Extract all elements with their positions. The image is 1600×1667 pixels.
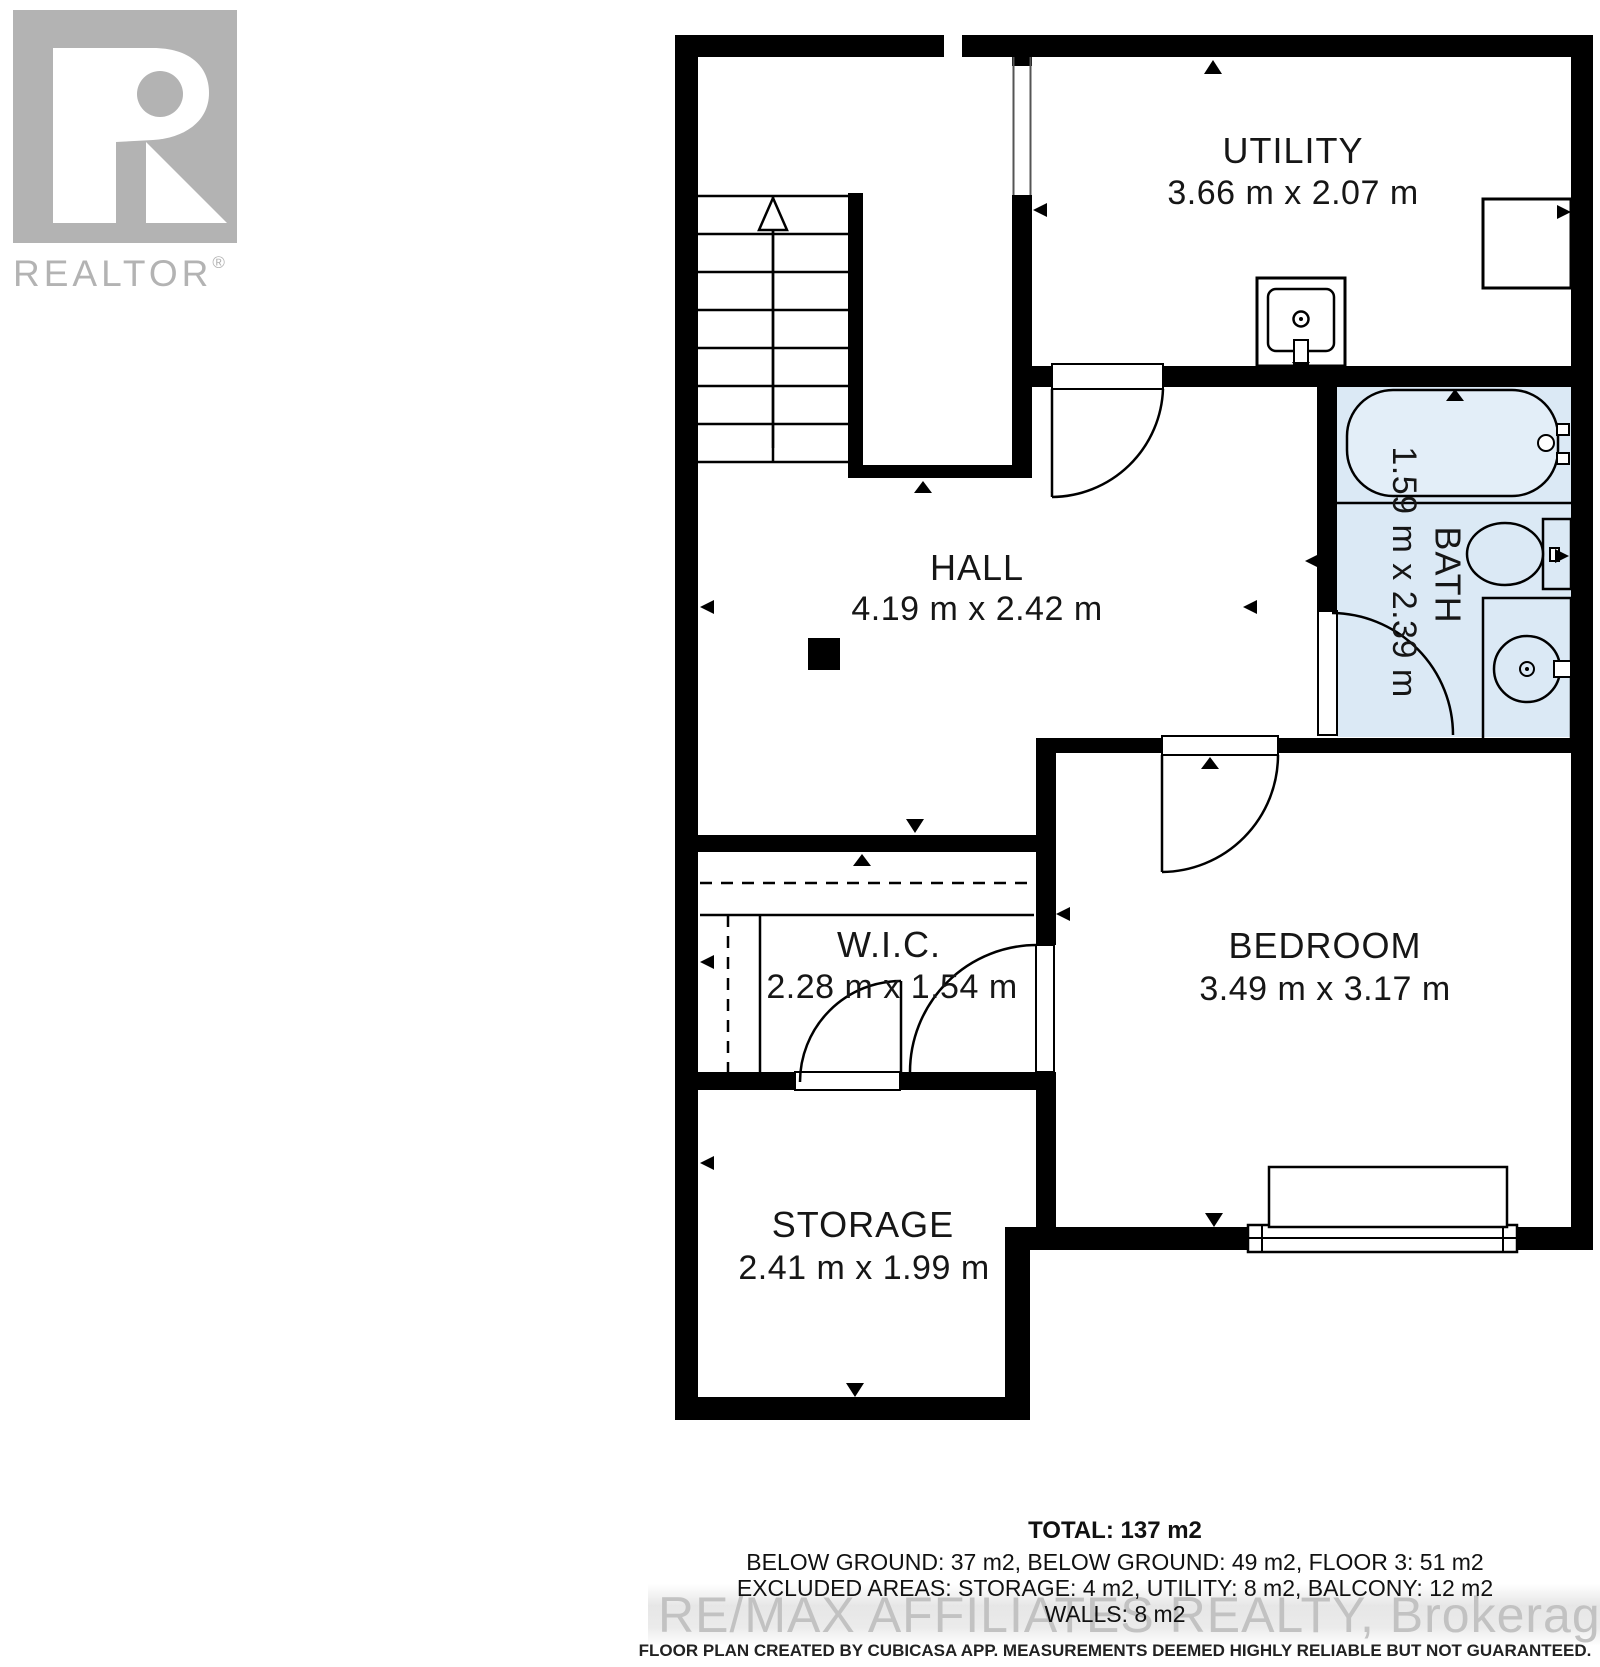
room-label-wic: W.I.C. <box>837 924 941 965</box>
wall-stairwell-stub <box>1012 57 1032 66</box>
summary-excluded: EXCLUDED AREAS: STORAGE: 4 m2, UTILITY: … <box>630 1575 1600 1601</box>
wall-stair-right <box>848 193 863 465</box>
wall-bedroom-bottom-left <box>1005 1227 1248 1250</box>
wall-storage-right <box>1005 1227 1030 1420</box>
floor-plan-svg: UTILITY 3.66 m x 2.07 m HALL 4.19 m x 2.… <box>0 0 1600 1667</box>
wall-stairwell-vertical <box>1012 195 1032 478</box>
wall-hall-bottom <box>698 835 1036 852</box>
room-dims-bedroom: 3.49 m x 3.17 m <box>1199 970 1450 1008</box>
wall-top <box>675 35 1593 57</box>
summary-areas: BELOW GROUND: 37 m2, BELOW GROUND: 49 m2… <box>630 1549 1600 1575</box>
room-dims-utility: 3.66 m x 2.07 m <box>1167 174 1418 212</box>
dresser-icon <box>1269 1167 1507 1227</box>
wall-bath-left <box>1317 380 1337 613</box>
utility-sink-icon <box>1257 278 1345 376</box>
room-label-bedroom: BEDROOM <box>1228 925 1421 966</box>
wall-storage-bottom <box>675 1397 1030 1420</box>
room-label-storage: STORAGE <box>772 1204 954 1245</box>
disclaimer-text: FLOOR PLAN CREATED BY CUBICASA APP. MEAS… <box>615 1641 1600 1661</box>
room-label-utility: UTILITY <box>1222 130 1363 171</box>
room-dims-wic: 2.28 m x 1.54 m <box>766 968 1017 1006</box>
wall-hall-top <box>848 465 1032 478</box>
stairwell-opening <box>1014 57 1031 195</box>
summary-walls: WALLS: 8 m2 <box>630 1601 1600 1627</box>
wall-utility-bottom-b <box>1163 366 1593 387</box>
room-label-hall: HALL <box>930 547 1024 588</box>
door-utility-icon <box>1052 364 1163 497</box>
area-summary: TOTAL: 137 m2 BELOW GROUND: 37 m2, BELOW… <box>630 1517 1600 1627</box>
stairs-up-arrow-head <box>759 198 787 230</box>
wall-top-break <box>944 33 962 59</box>
wall-wic-bottom-right <box>900 1072 1056 1090</box>
room-dims-bath: 1.59 m x 2.39 m <box>1385 446 1423 697</box>
wall-bedroom-top-left <box>1036 738 1162 753</box>
room-dims-storage: 2.41 m x 1.99 m <box>738 1249 989 1287</box>
wall-interior-vertical-lower <box>1036 1072 1056 1227</box>
floor-plan-page: REALTOR® <box>0 0 1600 1667</box>
bathtub-icon <box>1337 390 1571 503</box>
window-icon <box>1248 1225 1517 1252</box>
summary-total: TOTAL: 137 m2 <box>630 1517 1600 1545</box>
wall-utility-bottom-a <box>1032 366 1052 387</box>
room-dims-hall: 4.19 m x 2.42 m <box>851 590 1102 628</box>
wall-right <box>1571 35 1593 1250</box>
wall-interior-vertical-upper <box>1036 738 1056 945</box>
room-label-bath: BATH <box>1428 526 1469 623</box>
wall-left <box>675 35 698 1420</box>
column-icon <box>808 638 840 670</box>
wall-bedroom-bottom-right <box>1517 1227 1593 1250</box>
staircase-icon <box>698 196 848 462</box>
wall-wic-bottom-left <box>698 1072 795 1090</box>
